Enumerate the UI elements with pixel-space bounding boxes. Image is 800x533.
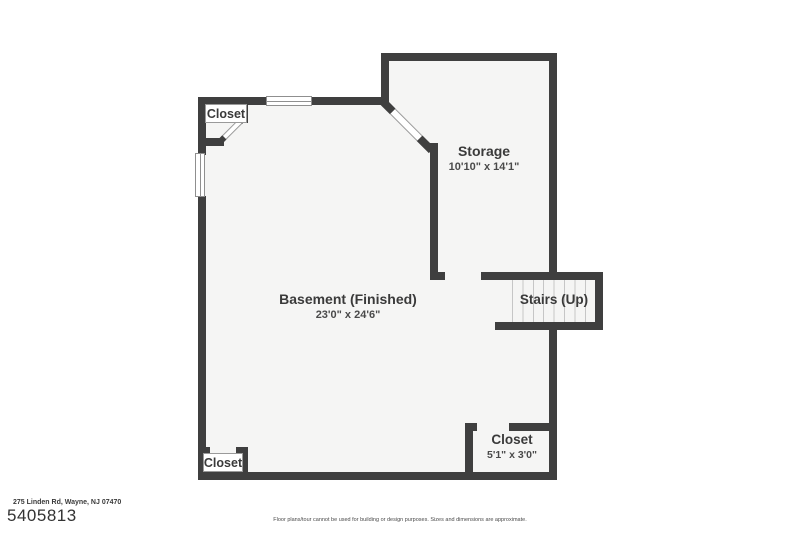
listing-id: 5405813 [7,506,77,526]
wall [495,322,603,330]
wall [381,53,557,61]
room-label-closet-bottom-left: Closet [203,453,243,472]
wall [481,272,603,280]
room-dimensions: 23'0" x 24'6" [268,309,428,323]
room-dimensions: 10'10" x 14'1" [414,161,554,175]
disclaimer-text: Floor plans/tour cannot be used for buil… [0,517,800,523]
wall [509,423,549,431]
floorplan-page: Closet Storage 10'10" x 14'1" Basement (… [0,0,800,533]
wall [198,472,557,480]
room-name: Basement (Finished) [268,291,428,309]
floor-storage [387,57,553,105]
room-name: Closet [472,432,552,449]
window-mullion [200,154,201,196]
room-label-closet-bottom-right: Closet 5'1" x 3'0" [472,432,552,462]
wall [430,272,445,280]
room-name: Storage [414,143,554,161]
wall [310,97,389,105]
wall [465,423,477,431]
room-dimensions: 5'1" x 3'0" [472,449,552,462]
wall [381,53,389,104]
room-label-basement: Basement (Finished) 23'0" x 24'6" [268,291,428,322]
window-icon [266,96,312,106]
wall [198,196,206,480]
window-mullion [267,101,311,102]
property-address: 275 Linden Rd, Wayne, NJ 07470 [13,499,121,506]
room-label-closet-top-left: Closet [205,104,247,123]
room-name: Closet [204,456,242,470]
room-label-storage: Storage 10'10" x 14'1" [414,143,554,174]
room-name: Closet [207,107,245,121]
room-name: Stairs (Up) [504,292,604,309]
room-label-stairs: Stairs (Up) [504,292,604,309]
window-icon [195,153,205,197]
